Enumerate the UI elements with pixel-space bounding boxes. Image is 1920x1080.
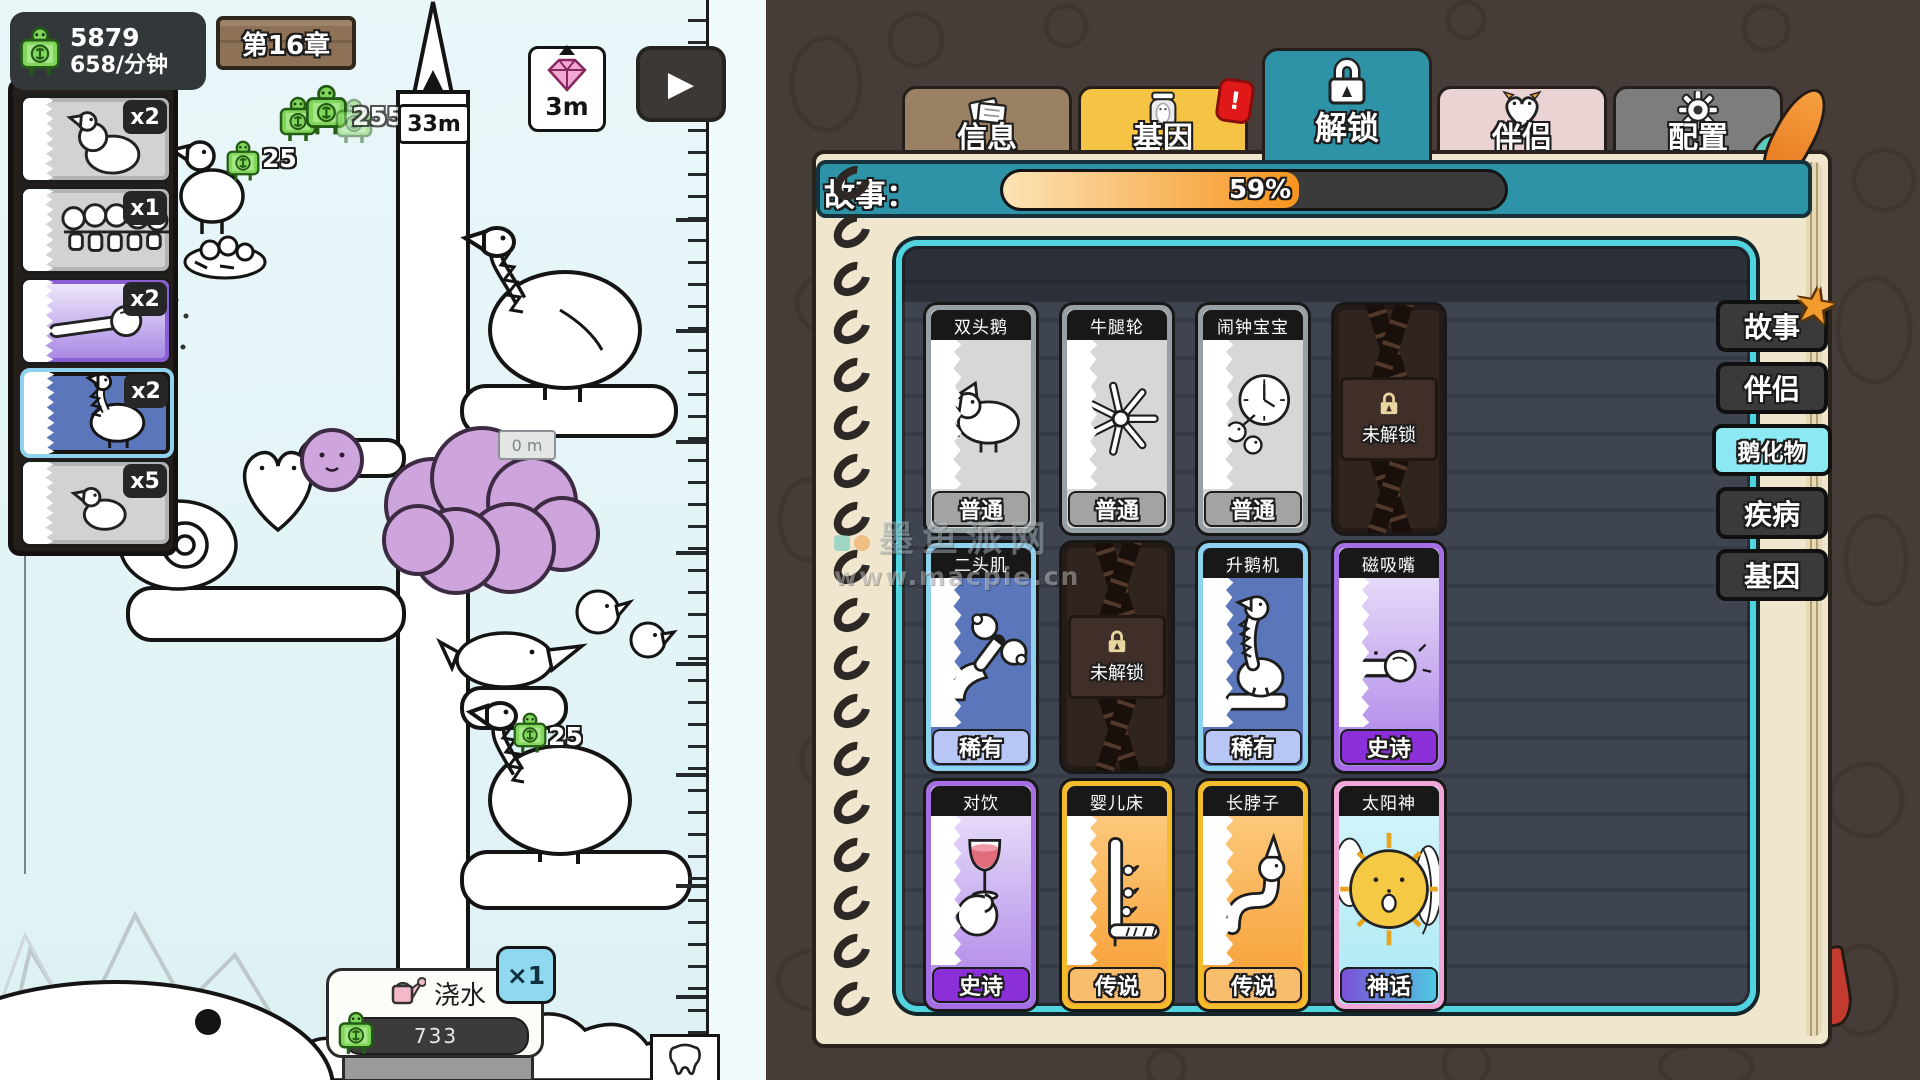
card-art xyxy=(1203,578,1303,727)
water-cost: 733 xyxy=(414,1024,458,1048)
tab-unlock-active[interactable]: 解锁 xyxy=(1262,48,1432,164)
collection-card[interactable]: 双头鹅 普通 xyxy=(923,302,1039,536)
card-rarity: 史诗 xyxy=(1340,729,1438,765)
card-rarity: 神话 xyxy=(1340,967,1438,1003)
card-rarity: 普通 xyxy=(932,491,1030,527)
income-popup: 255 xyxy=(352,102,404,131)
inventory-count: x2 xyxy=(124,374,168,408)
card-art xyxy=(931,340,1031,489)
branch-left xyxy=(128,588,404,640)
money-icon xyxy=(18,26,62,76)
card-name: 长脖子 xyxy=(1203,786,1303,816)
diamond-value: 3m xyxy=(545,92,588,121)
card-art xyxy=(931,578,1031,727)
card-name: 对饮 xyxy=(931,786,1031,816)
card-art xyxy=(931,816,1031,965)
play-icon: ▶ xyxy=(668,64,694,104)
card-art xyxy=(1067,816,1167,965)
inventory-card[interactable]: x1 xyxy=(20,186,172,274)
lock-icon xyxy=(1323,53,1371,107)
money-rate: 658/分钟 xyxy=(70,53,168,78)
card-grid: 双头鹅 普通 xyxy=(923,302,1441,1006)
inventory-card[interactable]: x2 xyxy=(20,277,172,365)
money-bill-icon xyxy=(228,142,259,181)
chapter-sign: 第16章 xyxy=(216,16,356,70)
side-tab-disease[interactable]: 疾病 xyxy=(1716,487,1828,539)
side-tab-partner[interactable]: 伴侣 xyxy=(1716,362,1828,414)
alert-badge: ! xyxy=(1214,77,1256,126)
chapter-label: 第16章 xyxy=(242,25,330,62)
diamond-icon xyxy=(545,58,589,92)
collection-card[interactable]: 磁吸嘴 史诗 xyxy=(1331,540,1447,774)
story-progress-fill: 59% xyxy=(1003,172,1299,208)
card-name: 太阳神 xyxy=(1339,786,1439,816)
lock-icon xyxy=(1378,391,1400,417)
tab-label: 解锁 xyxy=(1315,103,1379,149)
card-name: 婴儿床 xyxy=(1067,786,1167,816)
game-world: 0 m 5879 658/分钟 第16章 255 25 25 33m xyxy=(0,0,766,1080)
card-rarity: 史诗 xyxy=(932,967,1030,1003)
collection-card[interactable]: 长脖子 传说 xyxy=(1195,778,1311,1012)
play-button[interactable]: ▶ xyxy=(636,46,726,122)
card-rarity: 稀有 xyxy=(1204,729,1302,765)
card-name: 磁吸嘴 xyxy=(1339,548,1439,578)
baby-geese xyxy=(577,591,674,657)
ruler xyxy=(706,0,769,1080)
card-art xyxy=(1339,816,1439,965)
money-hud: 5879 658/分钟 xyxy=(10,12,206,90)
card-rarity: 传说 xyxy=(1068,967,1166,1003)
tooth-box[interactable] xyxy=(650,1034,720,1080)
collection-card[interactable]: 婴儿床 传说 xyxy=(1059,778,1175,1012)
card-rarity: 稀有 xyxy=(932,729,1030,765)
collection-card[interactable]: 牛腿轮 普通 xyxy=(1059,302,1175,536)
collection-panel: 双头鹅 普通 xyxy=(896,240,1756,1012)
income-popup: 25 xyxy=(548,722,583,751)
collection-card[interactable]: 太阳神 神 xyxy=(1331,778,1447,1012)
inventory-card[interactable]: x2 xyxy=(20,95,172,183)
card-name: 闹钟宝宝 xyxy=(1203,310,1303,340)
sun-god-doodle xyxy=(1339,816,1439,965)
card-name: 二头肌 xyxy=(931,548,1031,578)
tab-info[interactable]: 信息 xyxy=(902,86,1072,160)
inventory-count: x2 xyxy=(123,100,167,134)
guide-line xyxy=(24,556,26,874)
watering-can-icon xyxy=(384,977,426,1009)
collection-card[interactable]: 对饮 史诗 xyxy=(923,778,1039,1012)
diamond-bubble[interactable]: 3m xyxy=(528,46,606,132)
tooth-icon xyxy=(665,1042,705,1078)
big-goose-head xyxy=(0,982,333,1080)
inventory-card-selected[interactable]: x2 xyxy=(20,368,174,458)
card-art xyxy=(1339,578,1439,727)
side-tab-genes[interactable]: 基因 xyxy=(1716,549,1828,601)
money-total: 5879 xyxy=(70,24,168,53)
card-art xyxy=(1067,340,1167,489)
inventory-count: x5 xyxy=(123,464,167,498)
lock-icon xyxy=(1106,629,1128,655)
tab-partner[interactable]: 伴侣 xyxy=(1437,86,1607,160)
locked-plaque: 未解锁 xyxy=(1068,615,1166,699)
locked-label: 未解锁 xyxy=(1362,421,1416,447)
collection-card[interactable]: 闹钟宝宝 xyxy=(1195,302,1311,536)
inventory-count: x1 xyxy=(123,191,167,225)
water-cost-bar: 733 xyxy=(343,1017,529,1055)
story-progress-value: 59% xyxy=(1229,175,1291,205)
goose-right-top xyxy=(465,228,640,402)
card-art xyxy=(1203,816,1303,965)
story-progress-bar: 59% xyxy=(1000,169,1508,211)
collection-card[interactable]: 升鹅机 稀有 xyxy=(1195,540,1311,774)
locked-plaque: 未解锁 xyxy=(1340,377,1438,461)
card-rarity: 普通 xyxy=(1068,491,1166,527)
multiplier-badge[interactable]: ×1 xyxy=(496,946,556,1004)
collection-card-locked[interactable]: 未解锁 xyxy=(1331,302,1447,536)
game-screen: 0 m 5879 658/分钟 第16章 255 25 25 33m xyxy=(0,0,1920,1080)
tower-height-marker: 33m xyxy=(398,104,470,144)
inventory-count: x2 xyxy=(123,282,167,316)
card-name: 双头鹅 xyxy=(931,310,1031,340)
water-label: 浇水 xyxy=(434,975,486,1012)
inventory-panel: x2 x1 xyxy=(8,78,178,556)
card-name: 升鹅机 xyxy=(1203,548,1303,578)
collection-card-locked[interactable]: 未解锁 xyxy=(1059,540,1175,774)
side-tab-goosifications-active[interactable]: 鹅化物 xyxy=(1712,424,1832,476)
card-art xyxy=(1203,340,1303,489)
nest-eggs xyxy=(185,237,265,278)
story-progress-label: 故事： xyxy=(824,170,917,215)
locked-label: 未解锁 xyxy=(1090,659,1144,685)
card-rarity: 传说 xyxy=(1204,967,1302,1003)
income-popup: 25 xyxy=(262,144,297,173)
ground-height-marker: 0 m xyxy=(498,430,556,460)
money-icon xyxy=(337,1011,375,1055)
card-rarity: 普通 xyxy=(1204,491,1302,527)
tab-genes[interactable]: 基因 ! xyxy=(1078,86,1248,160)
collection-card[interactable]: 二头肌 稀有 xyxy=(923,540,1039,774)
card-name: 牛腿轮 xyxy=(1067,310,1167,340)
inventory-card[interactable]: x5 xyxy=(20,459,172,547)
